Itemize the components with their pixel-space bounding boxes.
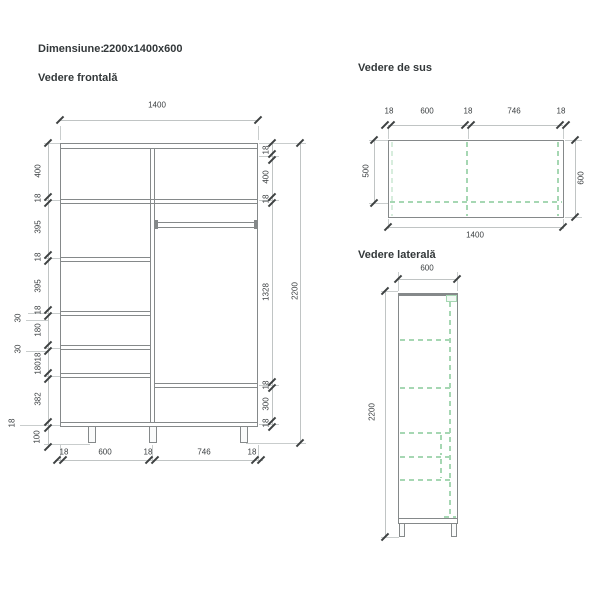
shelf-line [61,199,257,200]
hanging-rail [158,227,254,228]
depth-total-label: 600 [577,171,586,184]
shelf-line [61,315,150,316]
shelf-line [61,203,257,204]
shelf-line [61,261,150,262]
top-panel-line [61,148,257,149]
top-chain-label: 600 [420,107,433,116]
dashed-depth-line [390,201,562,203]
center-divider-line [150,148,151,423]
front-width-label: 1400 [148,101,166,110]
dim-tick [559,223,567,231]
rail-bracket [155,220,158,229]
left-chain-label: 180 [34,323,43,336]
extension-line [388,128,389,139]
side-height-label: 2200 [368,403,377,421]
dashed-shelf-line [400,432,450,434]
dashed-drawer-line [440,435,442,455]
cabinet-leg [149,427,157,443]
left-chain-label: 382 [34,392,43,405]
extension-line [258,445,259,461]
right-chain-label: 18 [262,419,271,428]
dimension-line [388,125,563,126]
extension-line [563,128,564,139]
dashed-edge-line [391,142,393,216]
front-view-title: Vedere frontală [38,72,117,84]
cabinet-leg [240,427,248,443]
left-chain-label: 18 [34,353,43,362]
shelf-line [155,387,257,388]
bottom-chain-label: 600 [98,448,111,457]
left-chain-label: 18 [34,253,43,262]
dimension-line [385,291,386,537]
bottom-chain-label: 746 [197,448,210,457]
extension-line [258,126,259,140]
drawer-line [61,373,150,374]
bottom-panel-line [399,518,457,519]
dim-tick [254,116,262,124]
left-chain-label: 395 [34,279,43,292]
left-chain-label: 400 [34,164,43,177]
top-chain-label: 18 [464,107,473,116]
legs-height-label: 100 [33,430,42,443]
top-chain-label: 18 [557,107,566,116]
side-depth-label: 600 [420,264,433,273]
left-chain-label: 18 [34,194,43,203]
technical-drawing: Dimensiune: 2200x1400x600 Vedere frontal… [0,0,600,600]
cabinet-leg [399,524,405,537]
bottom-chain-label: 18 [248,448,257,457]
right-chain-label: 300 [262,397,271,410]
right-chain-label: 1328 [262,283,271,301]
cabinet-leg [88,427,96,443]
top-panel-edge [446,295,457,302]
shelf-line [155,383,257,384]
right-chain-label: 18 [262,146,271,155]
bottom-chain-label: 18 [144,448,153,457]
right-chain-label: 400 [262,170,271,183]
left-chain-label: 18 [34,306,43,315]
depth-front-label: 500 [362,164,371,177]
dashed-shelf-line [400,387,450,389]
dimension-line [60,120,258,121]
left-outer-label: 30 [14,314,23,323]
right-chain-label: 18 [262,381,271,390]
dimension-line [55,460,263,461]
center-divider-line [154,148,155,423]
hanging-rail [158,222,254,223]
front-cabinet-outline [60,143,258,427]
cabinet-leg [451,524,457,537]
bottom-chain-label: 18 [60,448,69,457]
dashed-drawer-line [440,459,442,478]
dashed-door-line [449,302,451,518]
extension-line [60,126,61,140]
dimension-line [374,140,375,203]
shelf-line [61,311,150,312]
extension-line [468,128,469,139]
leader-line [20,425,60,426]
left-chain-label: 180 [34,361,43,374]
top-view-outline [388,140,564,218]
top-view-title: Vedere de sus [358,62,432,74]
front-height-label: 2200 [291,282,300,300]
left-outer-label: 30 [14,345,23,354]
dashed-divider-line [466,142,468,216]
top-chain-label: 746 [507,107,520,116]
drawer-line [61,377,150,378]
top-view-width-label: 1400 [466,231,484,240]
dimension-line [48,143,49,448]
dimension-line [300,143,301,443]
dimension-value: 2200x1400x600 [103,43,183,55]
drawer-line [61,349,150,350]
left-outer-label: 18 [8,419,17,428]
dimension-line [388,227,563,228]
bottom-panel-line [61,422,257,423]
dashed-shelf-line [400,456,450,458]
side-view-title: Vedere laterală [358,249,436,261]
top-chain-label: 18 [385,107,394,116]
dimension-line [398,279,457,280]
right-chain-label: 18 [262,195,271,204]
rail-bracket [254,220,257,229]
drawer-line [61,345,150,346]
dashed-shelf-line [400,339,450,341]
dashed-shelf-line [400,479,450,481]
dashed-edge-line [557,142,559,216]
left-chain-label: 395 [34,220,43,233]
dimension-label: Dimensiune: [38,43,104,55]
shelf-line [61,257,150,258]
